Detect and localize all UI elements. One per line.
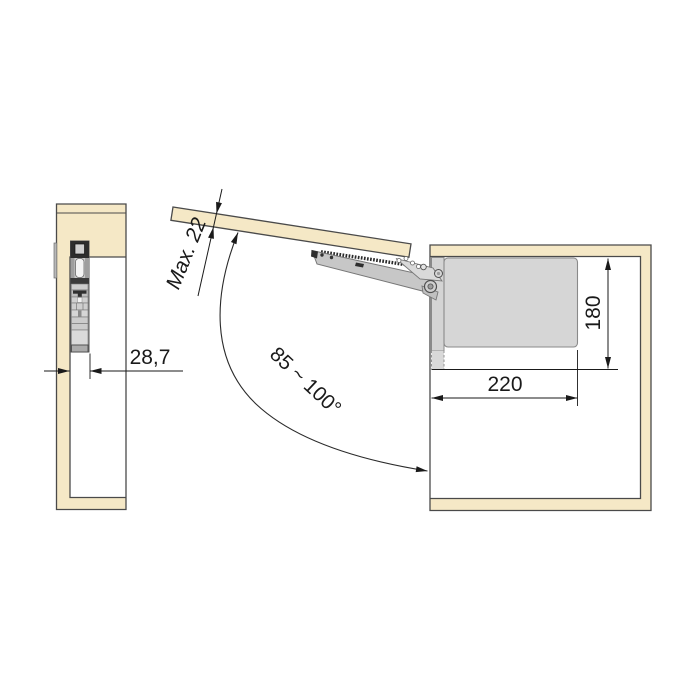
link-hole-1 [397, 259, 401, 263]
width-arrow-right-icon [566, 395, 578, 401]
link-hole-3 [411, 261, 415, 265]
door-thickness-label: Max. 22 [162, 214, 211, 292]
mechanism-bottom-cap [72, 345, 89, 352]
link-hole-2 [404, 257, 408, 261]
swing-arc [220, 233, 427, 472]
mechanism-seg-c [72, 303, 89, 310]
technical-drawing-page: 28,7 [0, 0, 700, 700]
height-dim-label: 180 [582, 295, 605, 330]
front-open-view: 85 ~ 100° Max. 22 180 220 [162, 189, 651, 511]
width-arrow-left-icon [432, 395, 444, 401]
mechanism-front-plate-hidden [432, 351, 445, 370]
mechanism-rail-left [71, 258, 75, 278]
mechanism-roller [76, 259, 85, 278]
thickness-arrow-top-icon [214, 202, 222, 215]
lift-arm-assembly [311, 250, 443, 300]
offset-dim-label: 28,7 [130, 346, 171, 369]
rivet-dot-1 [320, 253, 323, 256]
mechanism-top-slot [75, 244, 85, 254]
lift-fitting-diagram: 28,7 [0, 0, 700, 700]
closed-flap-edge [54, 243, 57, 278]
height-arrow-down-icon [605, 357, 611, 369]
mechanism-seg-f [72, 330, 89, 345]
width-dim-label: 220 [487, 373, 522, 396]
side-section-view: 28,7 [44, 204, 183, 510]
opening-angle-label: 85 ~ 100° [265, 343, 345, 420]
link-hole-4 [417, 265, 421, 269]
mechanism-seg-a [72, 284, 89, 290]
mechanism-t-stem [78, 294, 82, 298]
opening-angle-dimension: 85 ~ 100° [220, 231, 428, 474]
main-pivot-pin [428, 284, 433, 289]
mechanism-band [71, 278, 90, 284]
mechanism-seg-d-bar [78, 311, 82, 317]
cabinet-side-panel [57, 204, 127, 510]
rivet-dot-2 [330, 256, 333, 259]
mid-pivot-pin [437, 272, 440, 275]
arm-front-clip [311, 250, 318, 259]
arrowhead-left-icon [90, 368, 102, 374]
lift-mechanism-side-view [71, 241, 90, 352]
arc-arrowhead-bottom-icon [416, 466, 428, 474]
width-dimension: 220 [432, 350, 578, 406]
mechanism-rail-right [85, 258, 89, 278]
upper-hinge-pin [421, 264, 427, 270]
mechanism-seg-b-slot [78, 298, 83, 303]
mechanism-body [444, 258, 578, 347]
door-thickness-dimension: Max. 22 [162, 189, 222, 296]
height-arrow-up-icon [605, 259, 611, 271]
thickness-arrow-bottom-icon [208, 226, 216, 239]
arc-arrowhead-top-icon [231, 231, 241, 244]
mechanism-t-bar [73, 291, 87, 294]
